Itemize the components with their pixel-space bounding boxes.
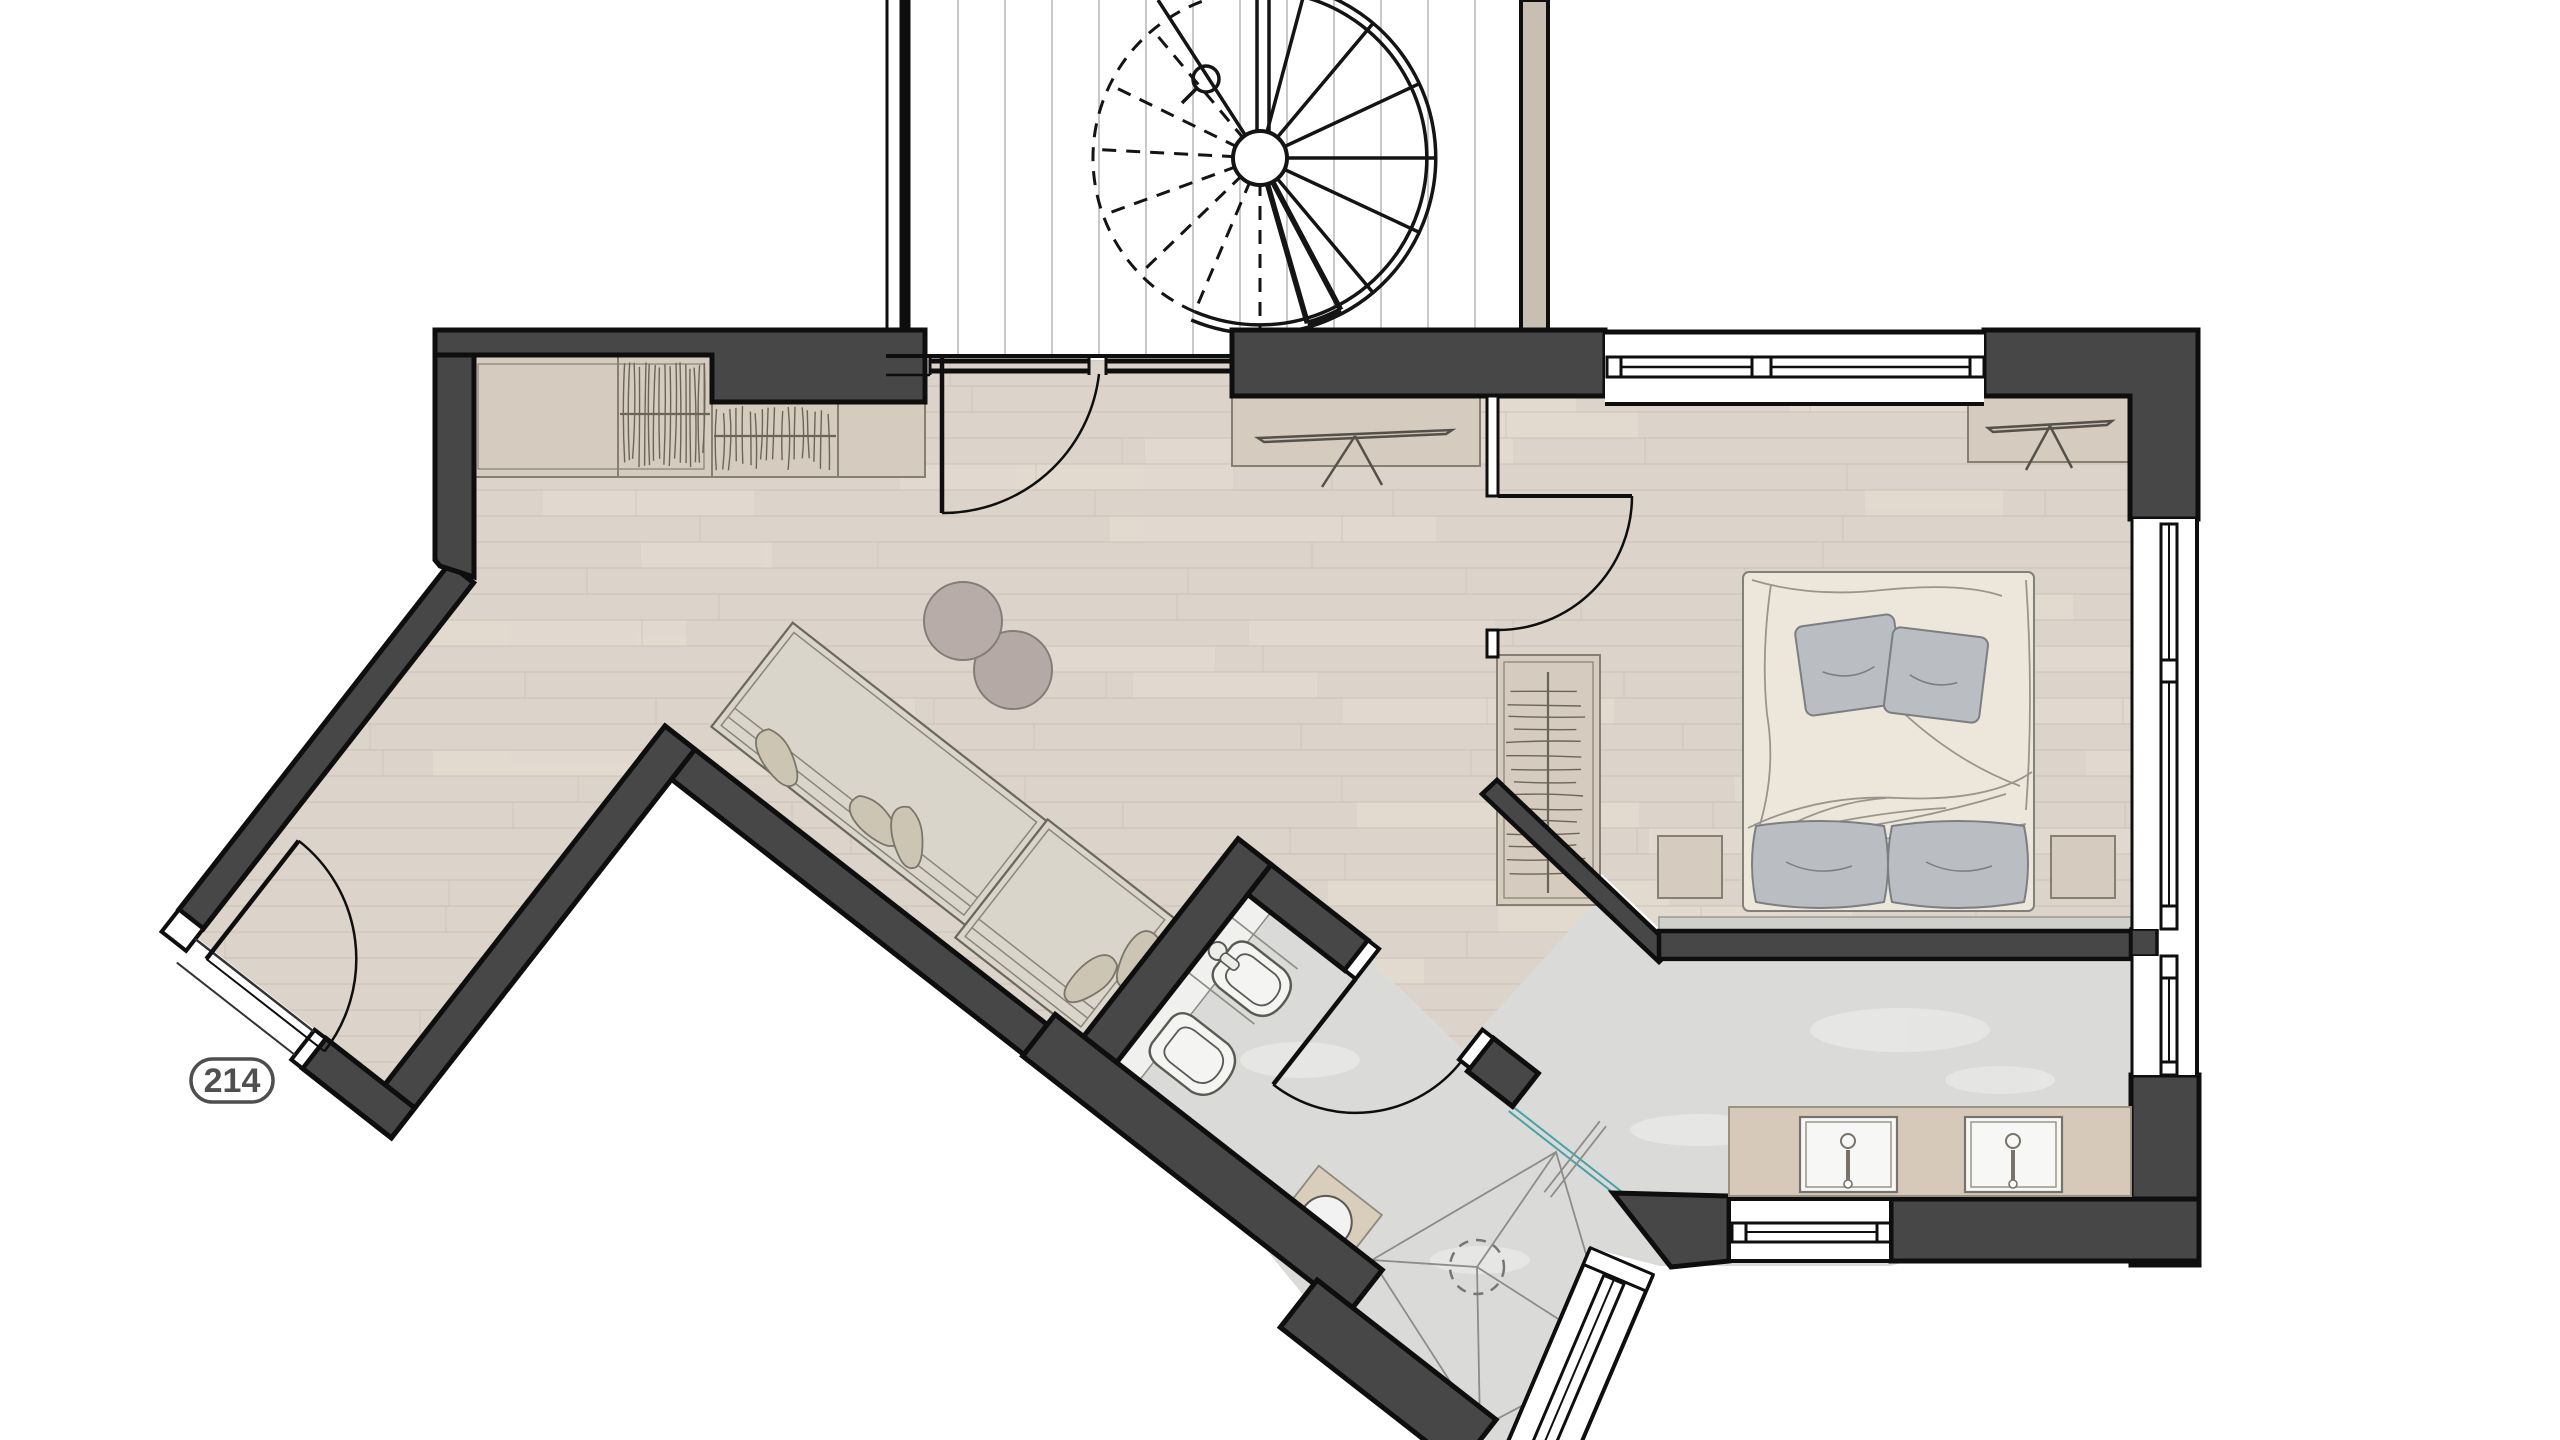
svg-text:214: 214	[204, 1062, 261, 1100]
